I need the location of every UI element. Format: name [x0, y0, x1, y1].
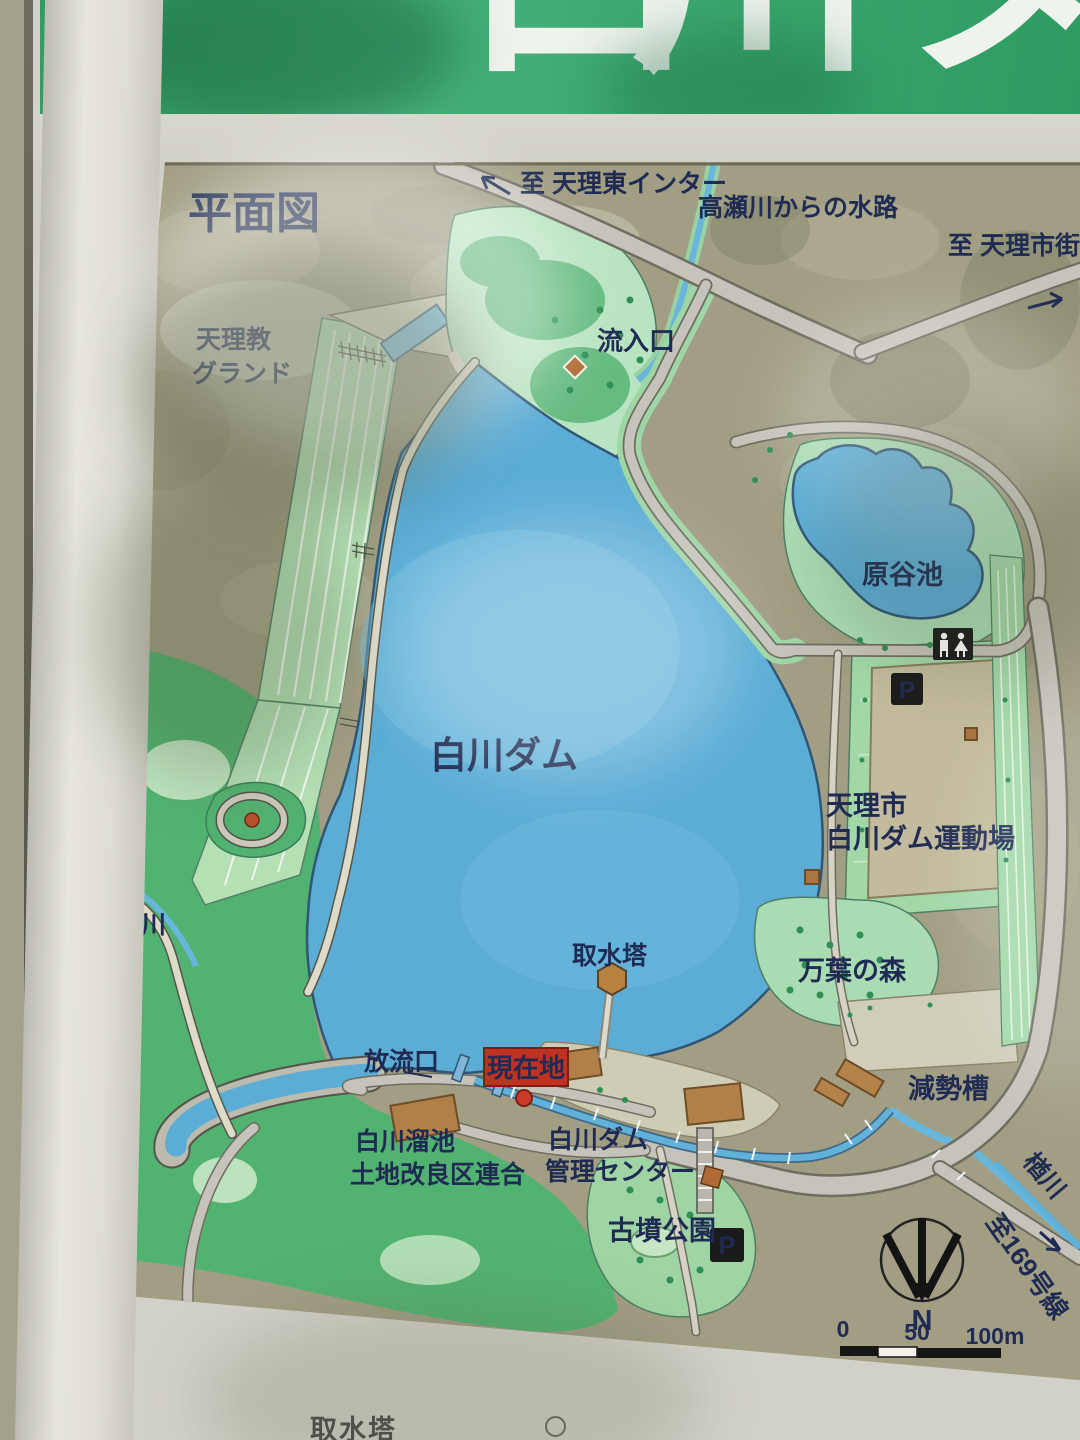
east-parking-area: [838, 988, 1018, 1072]
sign-photo: 白 川 ダ: [0, 0, 1080, 1440]
label-reservoir-union: 土地改良区連合: [350, 1160, 526, 1189]
sign-title-banner: 白 川 ダ: [40, 0, 1080, 114]
map-svg: P P 現在地 N: [105, 162, 1080, 1380]
label-reservoir-union: 白川溜池: [355, 1127, 455, 1156]
label-tenrikyo-ground: 天理教: [196, 326, 272, 354]
legend-partial-text: 取水塔: [310, 1408, 397, 1440]
label-to-tenri-city: 至 天理市街: [948, 231, 1080, 260]
lawn-patch: [380, 1235, 480, 1285]
label-haratani-pond: 原谷池: [862, 560, 943, 590]
label-management-center: 管理センター: [545, 1157, 695, 1186]
toilet-icon: [933, 628, 973, 660]
label-sports-ground: 白川ダム運動場: [826, 823, 1015, 854]
legend-ring-icon: [545, 1416, 566, 1437]
lake-highlight: [360, 530, 680, 770]
label-stilling-basin: 減勢槽: [908, 1074, 989, 1104]
lawn-patch: [140, 740, 230, 800]
sports-ground: [845, 640, 1018, 918]
label-management-center: 白川ダム: [548, 1125, 648, 1154]
label-sports-ground: 天理市: [826, 790, 907, 821]
label-to-tenri-higashi: 至 天理東インター: [520, 170, 727, 198]
label-inflow: 流入口: [597, 326, 675, 356]
label-manyo-forest: 万葉の森: [798, 956, 907, 986]
label-intake-tower: 取水塔: [572, 942, 648, 970]
viewpoint-marker: [245, 813, 259, 827]
svg-text:50: 50: [904, 1319, 930, 1345]
banner-title-char: ダ: [892, 0, 1080, 86]
label-takase-channel: 高瀬川からの水路: [698, 193, 899, 222]
svg-text:P: P: [719, 1232, 736, 1260]
banner-title-char: 川: [632, 0, 874, 86]
label-outlet: 放流口: [363, 1047, 439, 1076]
label-kofun-park: 古墳公園: [608, 1216, 716, 1246]
label-tenrikyo-ground: グランド: [192, 360, 292, 388]
label-lake-name: 白川ダム: [430, 735, 578, 776]
svg-text:0: 0: [837, 1316, 850, 1342]
map-panel: P P 現在地 N: [105, 162, 1080, 1380]
svg-text:P: P: [899, 677, 915, 704]
svg-text:100m: 100m: [966, 1323, 1025, 1349]
map-title: 平面図: [188, 189, 320, 238]
svg-text:現在地: 現在地: [487, 1053, 565, 1083]
parking-icon: P: [891, 673, 923, 705]
